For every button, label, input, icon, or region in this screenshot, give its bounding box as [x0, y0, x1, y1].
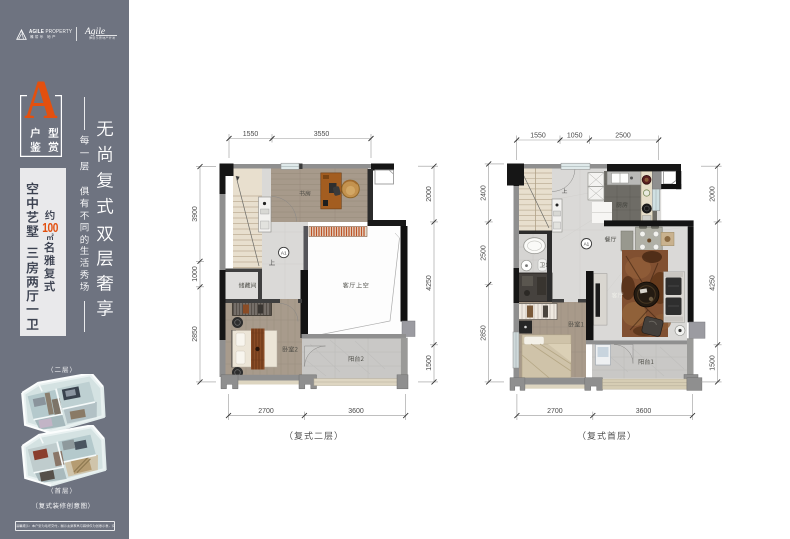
svg-text:卧室2: 卧室2 [282, 345, 298, 354]
svg-text:2500: 2500 [615, 133, 631, 140]
svg-text:阳台1: 阳台1 [638, 357, 654, 366]
svg-text:书房: 书房 [299, 189, 311, 198]
svg-text:2850: 2850 [192, 326, 199, 342]
svg-text:1500: 1500 [710, 355, 717, 371]
svg-text:2700: 2700 [258, 408, 274, 415]
svg-text:4250: 4250 [710, 275, 717, 291]
svg-text:客厅: 客厅 [611, 291, 623, 300]
svg-text:储藏间: 储藏间 [238, 281, 256, 290]
svg-text:3900: 3900 [192, 206, 199, 222]
svg-text:A1: A1 [281, 251, 287, 256]
svg-text:4250: 4250 [426, 275, 433, 291]
svg-text:1550: 1550 [243, 131, 259, 138]
svg-text:1050: 1050 [567, 133, 583, 140]
svg-text:1550: 1550 [530, 133, 546, 140]
svg-text:3550: 3550 [314, 131, 330, 138]
svg-text:上: 上 [562, 186, 568, 195]
svg-text:2700: 2700 [547, 408, 563, 415]
svg-text:2000: 2000 [710, 186, 717, 202]
svg-text:厨房: 厨房 [616, 200, 628, 209]
svg-text:1500: 1500 [426, 355, 433, 371]
svg-text:1000: 1000 [192, 266, 199, 282]
svg-text:2400: 2400 [481, 185, 488, 201]
svg-text:阳台2: 阳台2 [348, 354, 364, 363]
svg-text:2000: 2000 [426, 186, 433, 202]
svg-text:3600: 3600 [348, 408, 364, 415]
svg-text:3600: 3600 [636, 408, 652, 415]
svg-text:卧室1: 卧室1 [568, 320, 584, 329]
svg-text:2850: 2850 [481, 325, 488, 341]
svg-text:上: 上 [269, 257, 276, 267]
svg-text:餐厅: 餐厅 [604, 235, 616, 244]
svg-text:2500: 2500 [481, 245, 488, 261]
svg-text:A1: A1 [584, 242, 590, 247]
svg-text:客厅上空: 客厅上空 [343, 281, 370, 290]
